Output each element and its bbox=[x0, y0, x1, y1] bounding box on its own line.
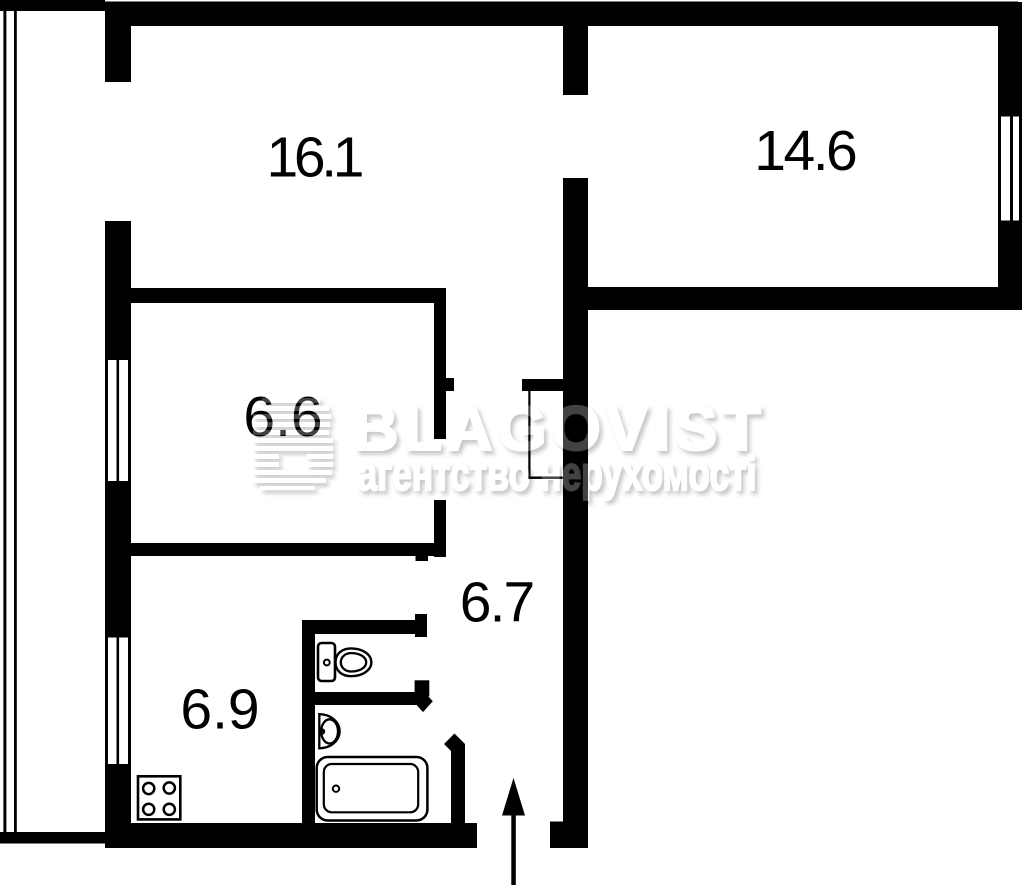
svg-text:16.1: 16.1 bbox=[267, 126, 365, 190]
svg-text:6.9: 6.9 bbox=[180, 678, 259, 742]
svg-text:агентство нерухомості: агентство нерухомості bbox=[358, 448, 757, 501]
svg-text:14.6: 14.6 bbox=[754, 119, 858, 183]
svg-text:6.7: 6.7 bbox=[460, 571, 536, 635]
